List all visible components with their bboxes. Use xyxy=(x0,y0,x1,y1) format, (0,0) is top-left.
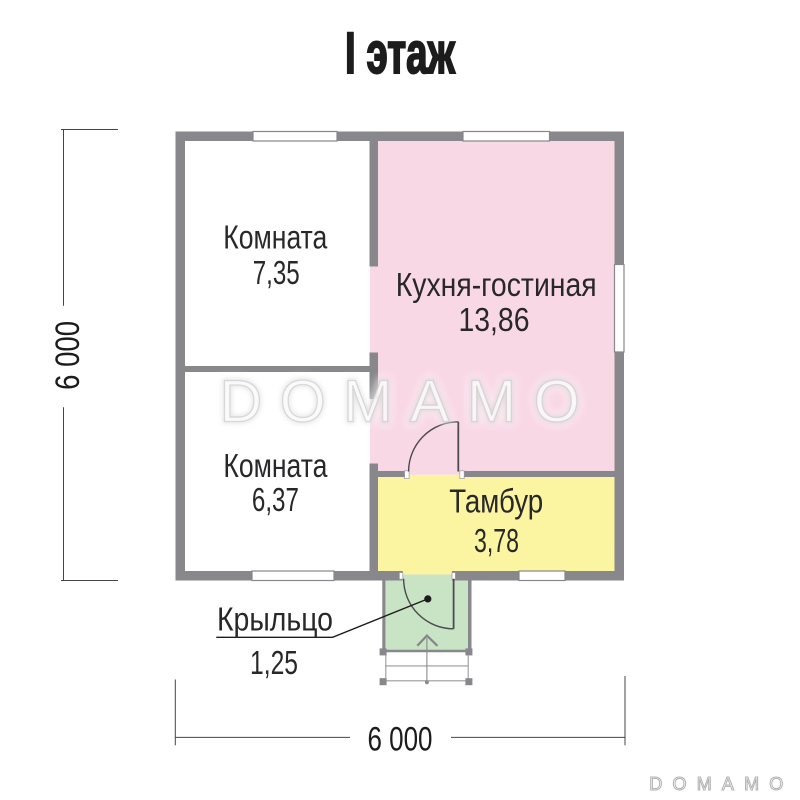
svg-text:Кухня-гостиная: Кухня-гостиная xyxy=(396,266,597,303)
svg-text:6,37: 6,37 xyxy=(252,481,299,518)
svg-text:6 000: 6 000 xyxy=(368,720,433,758)
svg-text:7,35: 7,35 xyxy=(253,254,300,291)
svg-text:Комната: Комната xyxy=(223,447,328,484)
svg-text:13,86: 13,86 xyxy=(459,301,530,338)
svg-text:Комната: Комната xyxy=(223,219,328,256)
svg-text:1,25: 1,25 xyxy=(250,644,298,681)
svg-text:DOMAMO: DOMAMO xyxy=(649,774,793,794)
svg-text:I этаж: I этаж xyxy=(345,21,456,86)
svg-text:6 000: 6 000 xyxy=(49,321,87,390)
svg-text:DOMAMO: DOMAMO xyxy=(220,369,598,435)
svg-text:3,78: 3,78 xyxy=(474,522,519,559)
svg-text:Крыльцо: Крыльцо xyxy=(217,601,333,638)
svg-text:Тамбур: Тамбур xyxy=(449,483,543,520)
